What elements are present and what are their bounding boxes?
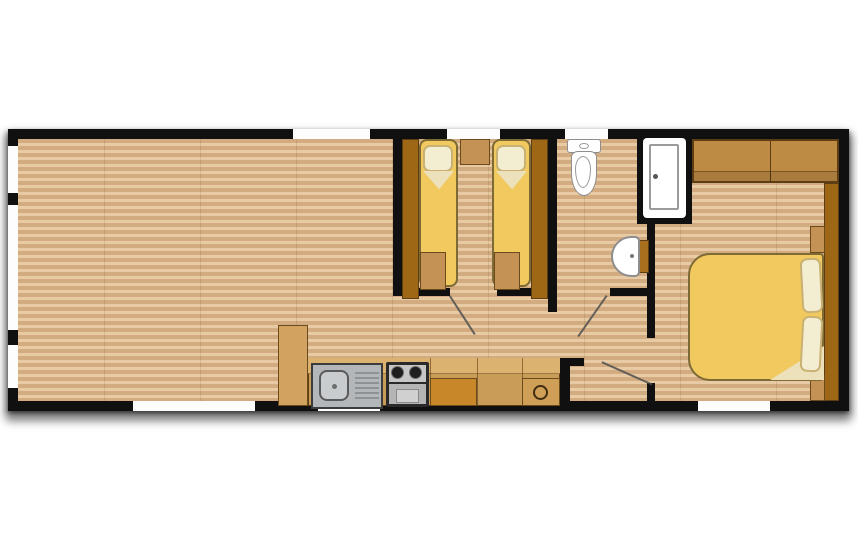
twin-bedside-table [460,139,490,165]
bedroom-door-swing [601,362,652,386]
turned-sheet [496,171,527,191]
right-wall [839,129,849,411]
twin-foot-locker-right [494,252,520,290]
shower-enclosure [637,132,692,224]
page: { "type": "floorplan", "palette": { "wal… [0,0,858,536]
toilet-bowl [571,151,597,196]
headboard-unit [824,183,839,401]
bedroom-left-wall-upper [647,217,655,338]
burner-left [391,366,404,379]
window-left-middle [8,205,18,330]
window-left-lower [8,345,18,388]
twin-foot-locker-left [420,252,446,290]
top-wall [8,129,849,139]
overhead-wardrobe [692,139,839,183]
twin-wardrobe-left [402,139,419,299]
window-left-upper [8,146,18,193]
window-top-twin-room [447,129,500,139]
floorplan [8,129,849,411]
headboard-shelf-upper [810,226,825,253]
twin-room-right-wall [548,139,557,296]
basin-drain [630,254,634,258]
twin-wardrobe-right [531,139,548,299]
window-top-lounge [293,129,370,139]
turned-sheet [423,171,454,191]
twin-room-corner-stub [548,296,557,312]
window-top-bathroom [565,129,608,139]
bathroom-door-swing [578,295,608,337]
wardrobe-lower-shade [694,171,837,181]
twin-room-left-wall [393,139,402,296]
window-bottom-bedroom [698,401,770,411]
oven-door [396,389,419,403]
pillow [423,145,453,172]
cooker [386,362,429,407]
flush-button [579,143,589,149]
sink-drain [332,384,337,389]
kitchen-tall-cabinet [278,325,308,406]
twin-room-door-swing [449,295,475,334]
double-bed-pillow-bottom [800,315,824,372]
burner-right [409,366,422,379]
sink-drainer [355,372,379,400]
shower-handle [653,174,658,179]
toilet-bowl-inner [575,156,591,188]
double-bed-pillow-top [800,257,824,313]
window-bottom-lounge [133,401,255,411]
appliance-dial [533,385,548,400]
wash-basin [611,236,640,277]
kitchen-sink-unit [311,363,383,409]
kitchen-end-wall-cap [560,358,584,366]
kitchen-base-cabinet [430,378,477,406]
pillow [496,145,526,172]
kitchen-appliance-unit [522,378,560,406]
bedroom-left-wall-lower [647,383,655,405]
counter-divider [477,358,478,406]
